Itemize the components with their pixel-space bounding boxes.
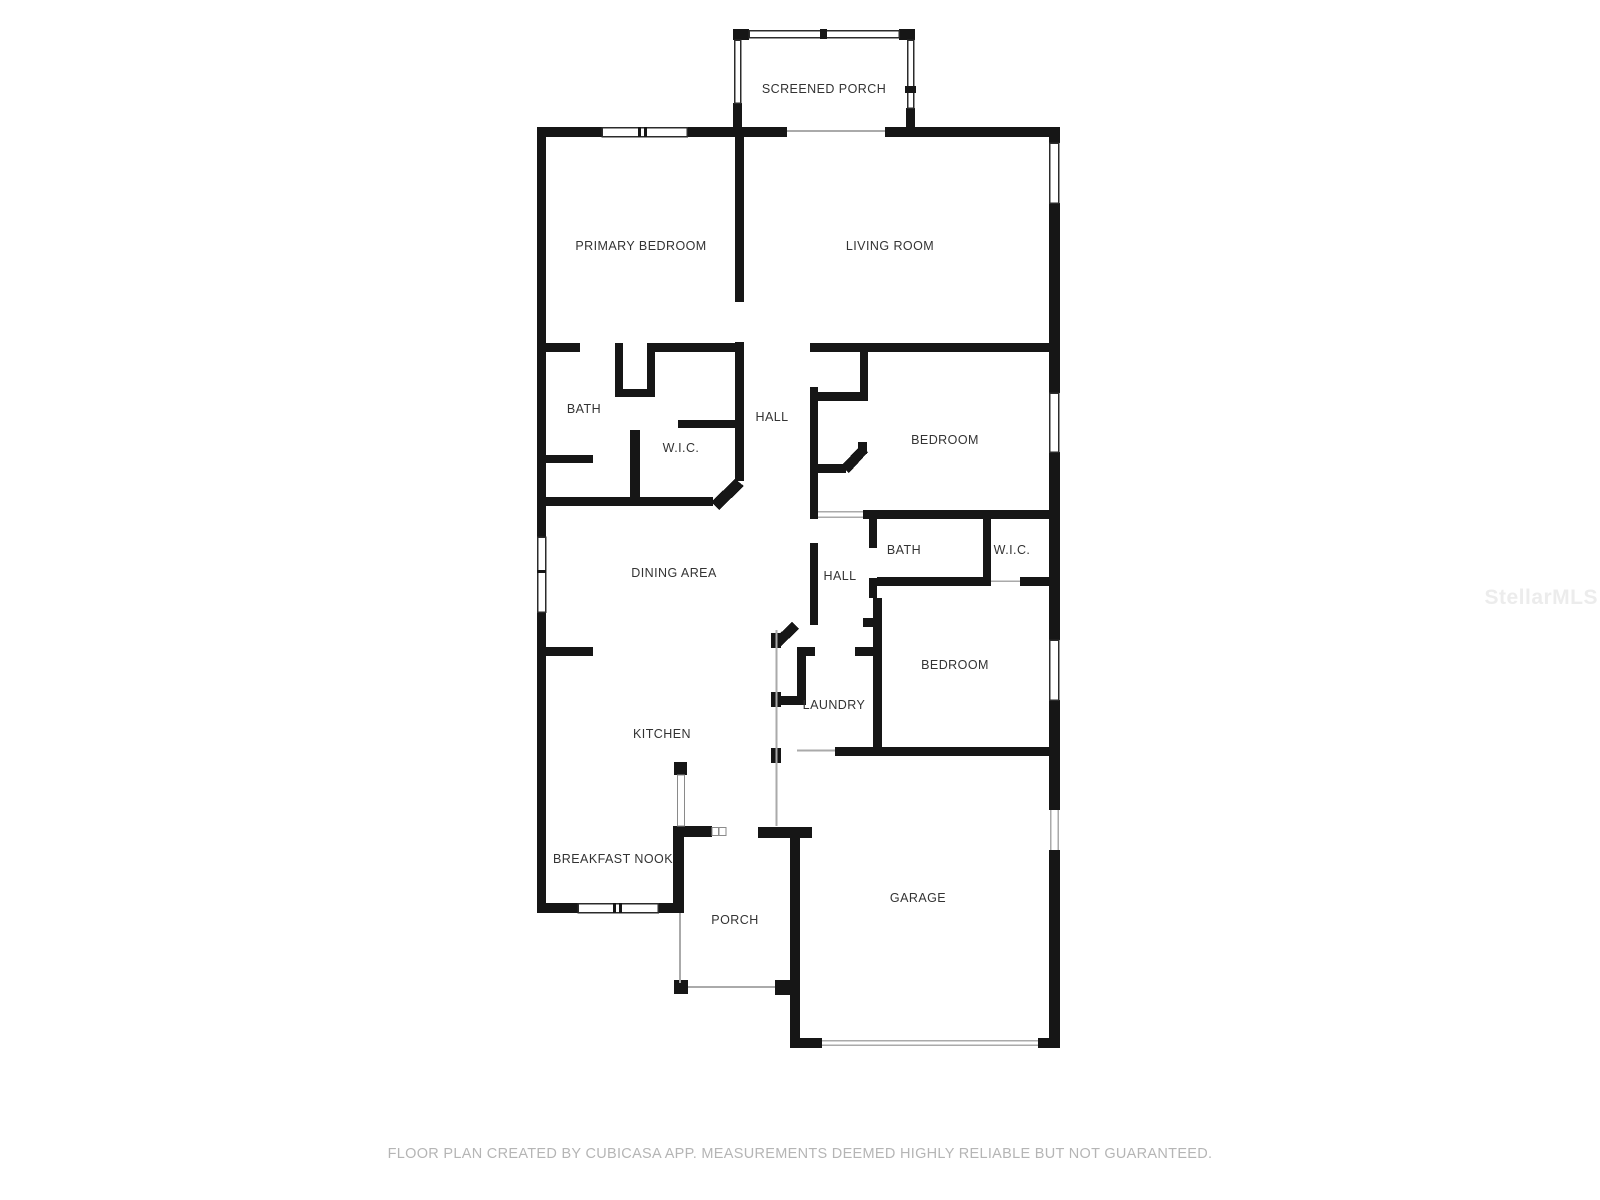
room-label-hall: HALL <box>755 410 788 424</box>
room-label-primary-bedroom: PRIMARY BEDROOM <box>575 239 706 253</box>
room-label-bedroom-2: BEDROOM <box>911 433 979 447</box>
room-label-kitchen: KITCHEN <box>633 727 691 741</box>
room-label-porch: PORCH <box>711 913 758 927</box>
room-label-garage: GARAGE <box>890 891 946 905</box>
room-label-living-room: LIVING ROOM <box>846 239 934 253</box>
room-label-dining-area: DINING AREA <box>631 566 717 580</box>
room-label-bath-2: BATH <box>887 543 921 557</box>
room-label-bedroom-3: BEDROOM <box>921 658 989 672</box>
floor-plan-page: SCREENED PORCHPRIMARY BEDROOMLIVING ROOM… <box>0 0 1600 1200</box>
room-label-primary-bath: BATH <box>567 402 601 416</box>
room-label-breakfast-nook: BREAKFAST NOOK <box>553 852 673 866</box>
room-label-hall-2: HALL <box>823 569 856 583</box>
floor-plan-drawing <box>0 0 1600 1200</box>
room-label-screened-porch: SCREENED PORCH <box>762 82 886 96</box>
room-label-laundry: LAUNDRY <box>803 698 866 712</box>
room-label-wic-2: W.I.C. <box>994 543 1031 557</box>
entry-porch <box>674 630 790 995</box>
footer-disclaimer: FLOOR PLAN CREATED BY CUBICASA APP. MEAS… <box>388 1146 1213 1162</box>
interior-walls <box>537 127 1060 837</box>
watermark: StellarMLS <box>1484 586 1598 610</box>
room-label-primary-wic: W.I.C. <box>663 441 700 455</box>
door-openings <box>787 130 1059 1046</box>
